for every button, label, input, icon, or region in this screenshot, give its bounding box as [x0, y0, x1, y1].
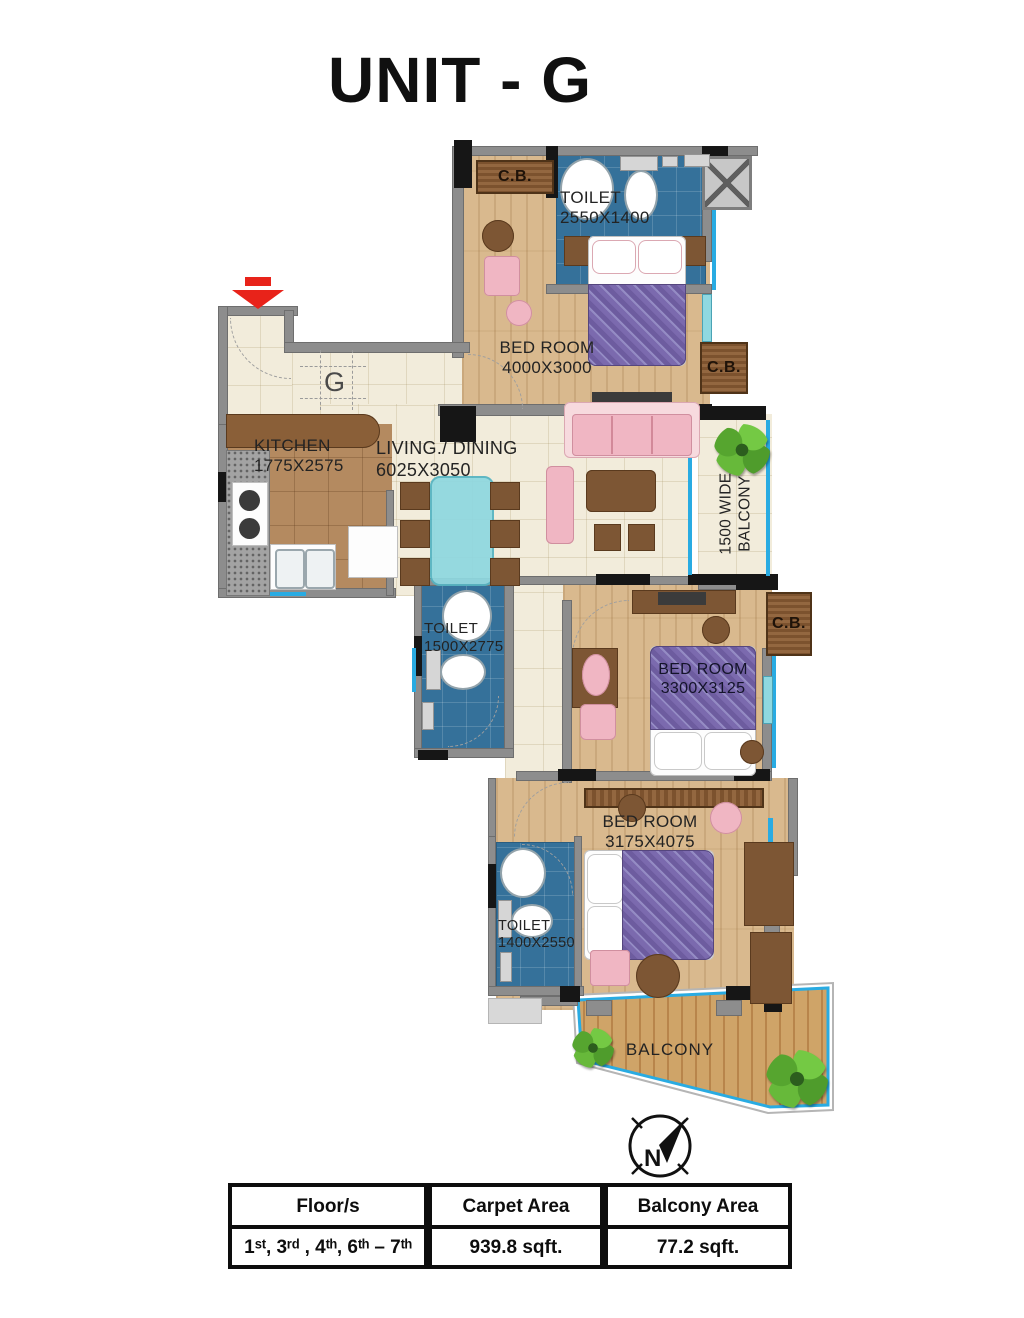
dining-chair: [490, 482, 520, 510]
room-name: LIVING./ DINING: [376, 438, 518, 460]
plant: [572, 1028, 614, 1068]
wall-column: [596, 574, 650, 585]
room-dims: 3300X3125: [650, 679, 756, 698]
stool: [710, 802, 742, 834]
wall-column: [418, 750, 448, 760]
room-dims: 3175X4075: [595, 832, 705, 852]
stool: [702, 616, 730, 644]
sofa-seat: [572, 414, 692, 456]
bedroom-bottom-label: BED ROOM 3175X4075: [595, 812, 705, 853]
room-dims: 4000X3000: [492, 358, 602, 378]
burner: [239, 490, 260, 511]
cupboard-top: C.B.: [476, 160, 554, 194]
wall-column: [688, 574, 746, 585]
nightstand: [740, 740, 764, 764]
computer: [658, 592, 706, 605]
room-name: BED ROOM: [492, 338, 602, 358]
sink-basin: [305, 549, 335, 589]
stool: [580, 704, 616, 740]
balcony-line1: 1500 WIDE: [717, 454, 736, 574]
room-dims: 6025X3050: [376, 460, 518, 482]
table-value: 77.2 sqft.: [608, 1229, 788, 1265]
room-name: BED ROOM: [650, 660, 756, 679]
room-name: TOILET: [424, 620, 503, 638]
wall: [218, 306, 228, 426]
cupboard-mid: C.B.: [766, 592, 812, 656]
pillow: [654, 732, 702, 770]
dining-chair: [400, 558, 430, 586]
dressing-table: [750, 932, 792, 1004]
dining-chair: [400, 482, 430, 510]
coffee-table: [586, 470, 656, 512]
toilet-top-label: TOILET 2550X1400: [560, 188, 650, 229]
window: [763, 676, 773, 724]
wall-column: [698, 406, 766, 420]
dining-chair: [490, 558, 520, 586]
stool: [594, 524, 621, 551]
compass-north-letter: N: [644, 1145, 661, 1172]
wash-basin: [500, 848, 546, 898]
toilet-mid-label: TOILET 1500X2775: [424, 620, 503, 656]
burner: [239, 518, 260, 539]
wc-tank: [426, 650, 441, 690]
wall: [586, 1000, 612, 1016]
room-dims: 2550X1400: [560, 208, 650, 228]
cupboard-label: C.B.: [772, 616, 806, 632]
stool: [628, 524, 655, 551]
pillow: [638, 240, 682, 274]
wall: [562, 600, 572, 783]
shower-fitting: [422, 702, 434, 730]
pillow: [587, 854, 623, 904]
shower-fitting: [662, 156, 678, 167]
page-title: UNIT - G: [240, 48, 680, 112]
dining-table: [430, 476, 494, 586]
armchair: [484, 256, 520, 296]
bedroom-top-label: BED ROOM 4000X3000: [492, 338, 602, 379]
dining-chair: [400, 520, 430, 548]
glass-line: [412, 648, 416, 692]
armchair: [546, 466, 574, 544]
nightstand: [564, 236, 590, 266]
window: [702, 294, 712, 342]
room-dims: 1500X2775: [424, 638, 503, 656]
table-header: Carpet Area: [432, 1187, 600, 1229]
room-dims: 1775X2575: [254, 456, 344, 476]
wall: [504, 578, 514, 754]
unit-mark-line: [352, 350, 353, 410]
wardrobe: [744, 842, 794, 926]
mirror: [582, 654, 610, 696]
balcony-line2: BALCONY: [736, 454, 755, 574]
area-table-col-floors: Floor/s 1ˢᵗ, 3ʳᵈ , 4ᵗʰ, 6ᵗʰ – 7ᵗʰ: [228, 1183, 428, 1269]
room-name: TOILET: [560, 188, 650, 208]
dining-chair: [490, 520, 520, 548]
wall-column: [560, 986, 580, 1002]
floor-plan-page: UNIT - G: [0, 0, 1024, 1318]
bedroom-mid-label: BED ROOM 3300X3125: [650, 660, 756, 698]
room-name: BED ROOM: [595, 812, 705, 832]
entry-arrow-icon: [230, 276, 286, 310]
shower-fitting: [500, 952, 512, 982]
wall: [488, 836, 496, 994]
wall-column: [440, 406, 476, 442]
cupboard-label: C.B.: [707, 360, 741, 376]
pillow: [587, 906, 623, 956]
service-ledge: [488, 998, 542, 1024]
wc-tank: [620, 156, 658, 171]
toilet-bottom-label: TOILET 1400X2550: [498, 918, 575, 953]
room-name: KITCHEN: [254, 436, 344, 456]
unit-mark-line: [320, 350, 321, 410]
cupboard-right: C.B.: [700, 342, 748, 394]
wall: [574, 836, 582, 992]
wardrobe-shelf: [584, 788, 764, 808]
balcony-side-label: 1500 WIDE BALCONY: [717, 454, 754, 574]
table-value: 1ˢᵗ, 3ʳᵈ , 4ᵗʰ, 6ᵗʰ – 7ᵗʰ: [232, 1229, 424, 1265]
sofa-cushion-divider: [611, 416, 613, 454]
bed-duvet: [588, 284, 686, 366]
wall-column: [558, 769, 596, 781]
ottoman: [506, 300, 532, 326]
sink-basin: [275, 549, 305, 589]
table-header: Floor/s: [232, 1187, 424, 1229]
shower-fitting: [684, 154, 710, 167]
kitchen-label: KITCHEN 1775X2575: [254, 436, 344, 477]
refrigerator: [348, 526, 398, 578]
area-table-col-balcony: Balcony Area 77.2 sqft.: [604, 1183, 792, 1269]
round-table: [482, 220, 514, 252]
area-table-col-carpet: Carpet Area 939.8 sqft.: [428, 1183, 604, 1269]
sofa-cushion-divider: [651, 416, 653, 454]
bed-duvet: [622, 850, 714, 960]
passage-floor: [505, 583, 565, 783]
pillow: [592, 240, 636, 274]
glass-line: [712, 198, 716, 290]
balcony-bottom-label: BALCONY: [620, 1040, 720, 1060]
round-table: [636, 954, 680, 998]
compass-icon: N: [612, 1098, 708, 1194]
plant: [766, 1050, 828, 1108]
cupboard-label: C.B.: [498, 169, 532, 185]
unit-letter: G: [324, 366, 345, 398]
wall: [716, 1000, 742, 1016]
room-name: TOILET: [498, 918, 575, 935]
wall-column: [454, 140, 472, 188]
wc-bowl: [440, 654, 486, 690]
living-dining-label: LIVING./ DINING 6025X3050: [376, 438, 518, 481]
room-dims: 1400X2550: [498, 935, 575, 952]
wall: [284, 342, 470, 353]
table-value: 939.8 sqft.: [432, 1229, 600, 1265]
bench: [590, 950, 630, 986]
wall-column: [488, 864, 496, 908]
